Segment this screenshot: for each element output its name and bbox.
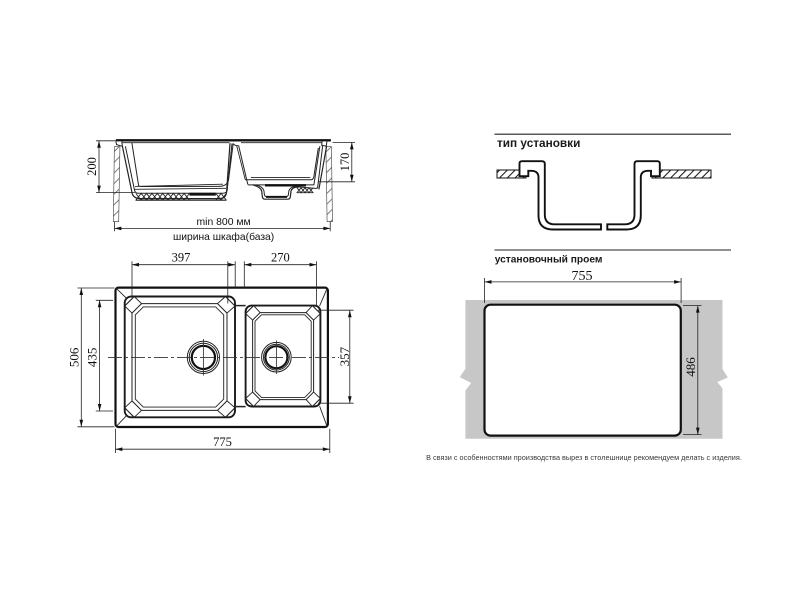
svg-text:397: 397 (172, 251, 191, 265)
svg-text:506: 506 (66, 347, 81, 367)
svg-text:В связи с особенностями произв: В связи с особенностями производства выр… (426, 453, 742, 462)
svg-text:min 800 мм: min 800 мм (197, 217, 251, 228)
svg-text:486: 486 (683, 357, 698, 377)
svg-text:тип установки: тип установки (497, 136, 580, 150)
svg-text:200: 200 (85, 157, 99, 176)
svg-text:270: 270 (271, 251, 290, 265)
svg-text:ширина шкафа(база): ширина шкафа(база) (173, 231, 274, 243)
svg-text:775: 775 (213, 435, 232, 449)
svg-text:170: 170 (338, 153, 352, 172)
svg-text:755: 755 (572, 269, 593, 284)
svg-text:установочный проем: установочный проем (495, 255, 603, 266)
svg-text:435: 435 (85, 348, 100, 368)
svg-text:357: 357 (337, 346, 352, 366)
